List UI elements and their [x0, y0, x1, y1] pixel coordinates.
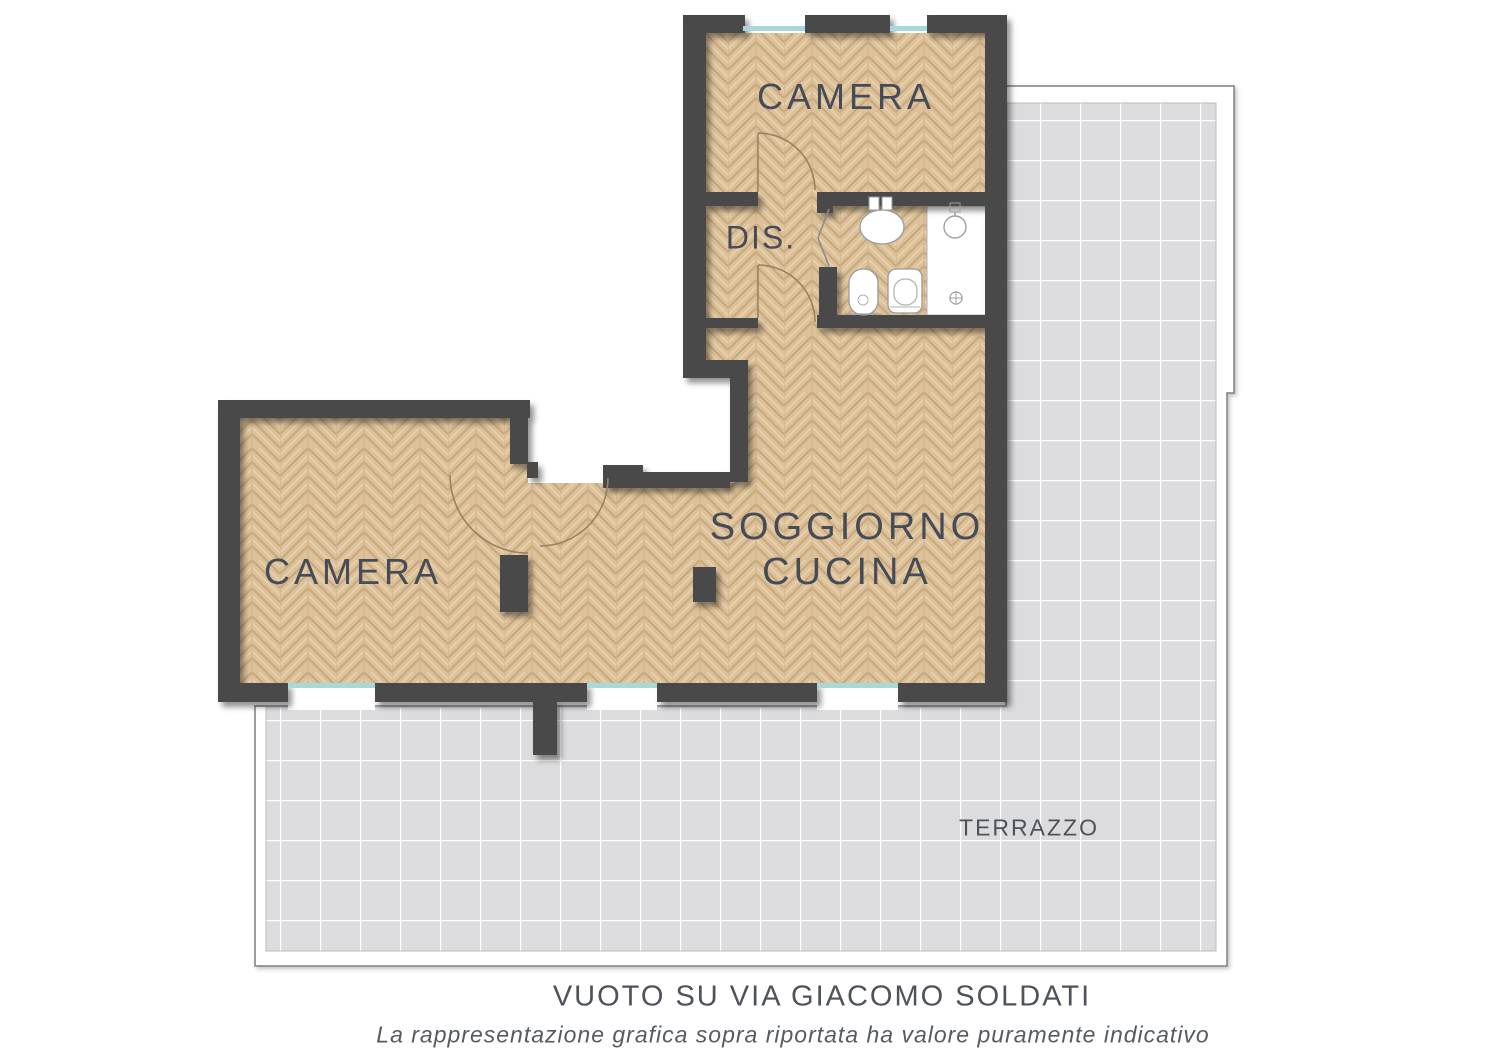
sink-basin: [860, 210, 904, 244]
window-top-left: [743, 26, 805, 31]
label-dis: DIS.: [726, 220, 796, 257]
wall-hall-top-b: [643, 472, 730, 488]
label-soggiorno-line1: SOGGIORNO: [710, 505, 985, 550]
wall-step: [527, 462, 538, 478]
label-soggiorno: SOGGIORNO CUCINA: [710, 505, 985, 595]
window-top-right: [890, 26, 927, 31]
bidet: [845, 269, 882, 315]
bidet-body: [849, 269, 878, 315]
window-bottom-soggiorno: [817, 683, 898, 688]
label-camera-top: CAMERA: [757, 76, 935, 118]
floor-plan-canvas: CAMERA DIS. CAMERA SOGGIORNO CUCINA TERR…: [0, 0, 1486, 1050]
wall-camera-left-west: [218, 400, 240, 702]
label-terrazzo: TERRAZZO: [959, 815, 1099, 842]
wall-bottom-b: [375, 683, 587, 702]
wall-stub-hall: [500, 555, 528, 612]
wall-bath-jamb: [817, 200, 833, 213]
wall-bath-south: [817, 315, 987, 328]
wall-bottom-a: [218, 683, 288, 702]
wall-camera-dis: [700, 192, 758, 206]
wall-dis-south: [683, 318, 758, 328]
label-soggiorno-line2: CUCINA: [710, 550, 985, 595]
wall-stub-terrace: [533, 702, 557, 755]
sink-faucet: [869, 197, 879, 210]
wall-camera-left-east: [510, 418, 528, 464]
wall-upper-left: [683, 15, 706, 368]
toilet: [888, 269, 922, 313]
caption-disclaimer: La rappresentazione grafica sopra riport…: [376, 1022, 1209, 1049]
wall-bottom-d: [898, 683, 1007, 702]
window-bottom-hall: [587, 683, 657, 688]
wall-top-b: [805, 15, 890, 33]
floor-camera-left: [225, 405, 528, 695]
wall-bottom-c: [657, 683, 817, 702]
wall-camera-bath: [817, 192, 987, 206]
wall-hall-top-a: [603, 465, 643, 488]
wall-camera-left-top: [218, 400, 530, 418]
shower-tray: [927, 206, 987, 315]
window-bottom-camera: [288, 683, 375, 688]
wall-dis-bath-divider: [819, 267, 837, 318]
sink-faucet-2: [882, 197, 892, 210]
wall-right: [985, 15, 1007, 702]
label-camera-left: CAMERA: [264, 551, 442, 593]
wall-corridor: [730, 368, 748, 482]
caption-street: VUOTO SU VIA GIACOMO SOLDATI: [553, 981, 1091, 1014]
